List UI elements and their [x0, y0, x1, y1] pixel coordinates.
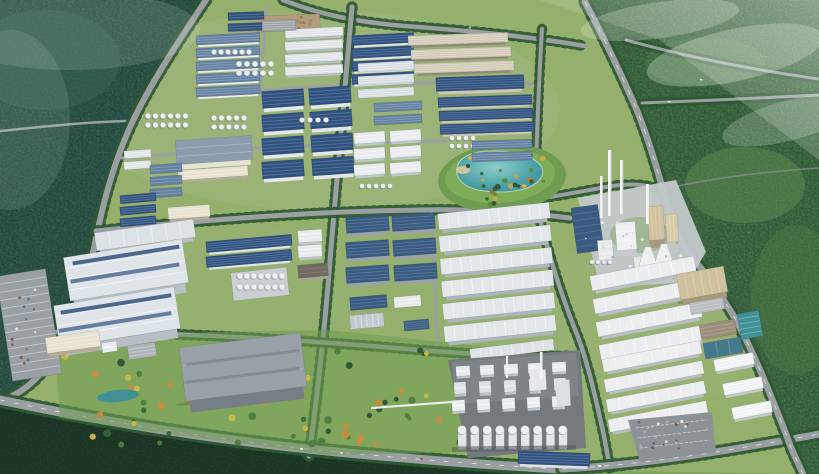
ne-tan-rows — [408, 32, 514, 76]
aerial-scene-canvas: Aerial 3D rendering of an industrial par… — [0, 0, 819, 474]
silo-structures-row3 — [502, 398, 516, 412]
silo-structures-row1 — [552, 362, 567, 375]
left-small-white — [124, 149, 151, 159]
flower-bed-yellow-1 — [522, 184, 527, 188]
plant-white-structure-2 — [597, 240, 613, 261]
silo-structures-row1 — [504, 364, 519, 377]
sw-small-white — [101, 341, 117, 353]
dormitory-grid-b — [390, 145, 422, 161]
silo-stack-1 — [540, 352, 543, 378]
car-on-road-4 — [598, 465, 601, 467]
plant-white-structure-1 — [615, 221, 637, 256]
navy-warehouse-grid2-col2 — [392, 238, 436, 260]
navy-warehouse-grid2-col2 — [393, 263, 437, 285]
silo-structures-row2 — [479, 381, 492, 396]
plant-tan-tower-2 — [665, 214, 679, 243]
navy-factory-grid-col2 — [311, 156, 354, 180]
mid-white-rows — [358, 61, 414, 99]
brown-roof-building — [297, 263, 328, 281]
north-parking-shed — [262, 19, 296, 31]
left-navy-rows — [120, 192, 157, 227]
ne-steel-rows — [472, 139, 532, 150]
navy-factory-grid-col1 — [261, 112, 304, 136]
ne-steel-rows — [472, 151, 532, 162]
white-complex-west — [298, 229, 323, 260]
dormitory-grid-a — [354, 163, 386, 179]
dormitory-grid-a — [354, 131, 386, 179]
white-complex-west — [298, 229, 323, 245]
left-small-white — [124, 160, 151, 170]
silo-structures-row2 — [504, 380, 517, 395]
navy-factory-grid-col1 — [261, 159, 304, 183]
south-white-small — [394, 295, 422, 308]
water-treatment-pools-1 — [737, 310, 763, 339]
silo-cylinder-tops — [457, 426, 567, 436]
nw-small-rows — [228, 22, 264, 31]
navy-warehouse-grid2-col1 — [345, 215, 389, 287]
plant-tan-tower-2 — [665, 214, 679, 243]
silo-stack-2 — [506, 356, 508, 378]
silo-structures-row1 — [456, 366, 471, 379]
navy-warehouse-grid2-col2 — [391, 213, 437, 285]
flower-bed-yellow-2 — [468, 156, 473, 160]
dormitory-grid-b — [390, 129, 422, 177]
north-parking-shed — [262, 19, 296, 31]
sw-small-white — [101, 341, 117, 353]
chimney-1-shade — [611, 150, 612, 216]
white-complex-west — [298, 244, 323, 260]
nw-small-rows — [228, 11, 264, 20]
south-striped-shed — [349, 313, 384, 330]
industrial-park-aerial-rendering: Aerial 3D rendering of an industrial par… — [0, 0, 819, 474]
plant-white-structure-1 — [615, 221, 637, 256]
dormitory-grid-a — [354, 131, 386, 147]
silo-structures-row3 — [452, 400, 466, 414]
solar-panel-yard — [404, 319, 430, 331]
forest-clearing-1 — [685, 147, 805, 223]
chimney-3 — [600, 176, 603, 218]
left-cream-office — [168, 205, 211, 223]
car-on-road-5 — [668, 101, 671, 102]
silo-structures-row3 — [477, 399, 491, 413]
navy-warehouse-grid2-col1 — [345, 215, 389, 237]
silo-structures-row1 — [480, 365, 495, 378]
silo-structures-row3 — [527, 397, 541, 411]
south-white-small — [394, 295, 422, 308]
navy-warehouse-grid2-col2 — [391, 213, 435, 235]
navy-warehouse-grid2-col1 — [345, 265, 389, 287]
navy-factory-grid-col1 — [261, 136, 304, 160]
left-cream-office — [168, 205, 211, 223]
ne-navy-rows — [438, 94, 534, 136]
silo-tower-1 — [529, 370, 546, 391]
solar-panel-yard — [404, 319, 430, 331]
navy-factory-grid-col1 — [261, 89, 304, 113]
chimney-2-shade — [622, 160, 623, 214]
bottom-navy-warehouse — [518, 451, 591, 469]
silo-tower-2 — [555, 380, 570, 407]
dormitory-grid-b — [390, 161, 422, 177]
plant-white-structure-2 — [597, 240, 613, 261]
brown-roof-building — [297, 263, 328, 281]
south-striped-shed — [349, 313, 384, 330]
car-on-road-3 — [420, 458, 423, 460]
nw-factory-rows — [196, 32, 261, 99]
chimney-4 — [646, 184, 649, 224]
ne-long-navy-hall — [436, 74, 525, 94]
navy-warehouse-grid2-col1 — [345, 240, 389, 262]
silo-structures-row2 — [454, 382, 467, 397]
water-treatment-pools-1 — [737, 310, 763, 339]
navy-factory-grid-col2 — [310, 133, 353, 157]
dormitory-grid-b — [390, 129, 422, 145]
ne-long-navy-hall — [436, 74, 525, 94]
navy-factory-grid-col2 — [308, 86, 351, 110]
dormitory-grid-a — [354, 147, 386, 163]
bottom-navy-warehouse — [518, 451, 591, 469]
